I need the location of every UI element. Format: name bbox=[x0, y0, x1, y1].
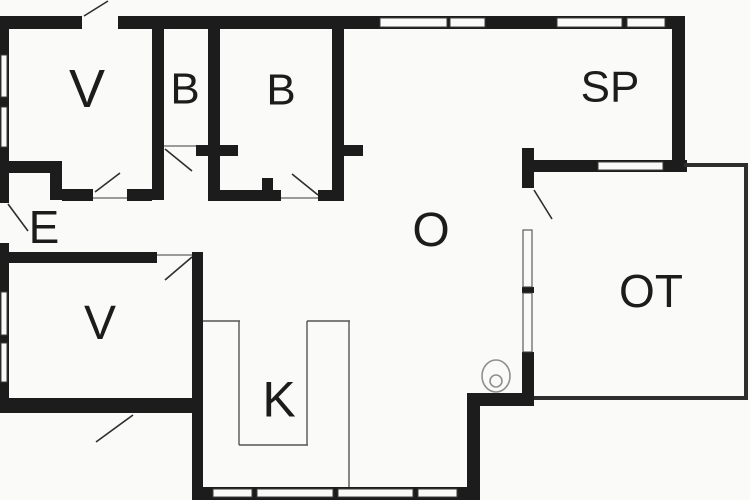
window-sp-bottom bbox=[598, 162, 663, 170]
wall-b1-b2 bbox=[208, 16, 220, 201]
room-label-living: O bbox=[412, 204, 449, 257]
window-left-2 bbox=[1, 107, 7, 147]
window-left-4 bbox=[1, 343, 7, 382]
terrace-edge-right bbox=[744, 163, 748, 400]
wall-k-right bbox=[467, 393, 480, 500]
room-label-entry: E bbox=[29, 201, 60, 253]
window-k-3 bbox=[338, 489, 413, 497]
wall-ot-left-mullion bbox=[522, 287, 534, 293]
gap-front-door bbox=[82, 14, 118, 31]
door-swing-v2-ext bbox=[96, 415, 133, 442]
wall-v1-bottom-right bbox=[127, 189, 152, 201]
room-label-dining: SP bbox=[581, 62, 640, 111]
room-label-bath-1: B bbox=[170, 64, 199, 113]
terrace-edge-top bbox=[684, 163, 748, 167]
labels-layer: VBBSPEOVKOT bbox=[29, 59, 683, 428]
terrace-edge-bottom bbox=[534, 396, 748, 400]
window-top-2 bbox=[450, 18, 485, 27]
door-swing-entry bbox=[8, 204, 28, 231]
wall-b2-o-stub bbox=[344, 145, 363, 156]
wall-sp-right bbox=[672, 16, 685, 172]
gap-entry-door bbox=[0, 203, 10, 243]
wall-e-step-top bbox=[0, 161, 62, 173]
window-ot-2 bbox=[523, 293, 532, 352]
room-label-kitchen: K bbox=[262, 372, 295, 428]
wall-v1-bottom-left bbox=[62, 189, 93, 201]
door-swing-b1 bbox=[165, 149, 192, 171]
wall-ot-left-lower bbox=[522, 352, 534, 406]
window-k-2 bbox=[257, 489, 333, 497]
wall-v2-top bbox=[0, 252, 157, 263]
wall-v1-b1 bbox=[152, 16, 164, 200]
window-top-3 bbox=[557, 18, 622, 27]
wall-b2-bottom-left bbox=[208, 190, 281, 201]
symbols-layer bbox=[482, 360, 510, 392]
door-swing-b2 bbox=[292, 174, 318, 195]
wall-b1-bottom-stub bbox=[196, 145, 238, 156]
window-top-4 bbox=[627, 18, 665, 27]
window-left-1 bbox=[1, 55, 7, 97]
door-swing-v2 bbox=[165, 257, 192, 280]
window-k-4 bbox=[418, 489, 457, 497]
wall-e-step-jog bbox=[50, 173, 62, 200]
stove-icon-inner bbox=[490, 375, 502, 387]
wall-b2-stub bbox=[262, 178, 273, 190]
door-swing-front bbox=[84, 1, 108, 16]
thresholds-layer bbox=[93, 146, 318, 255]
room-label-terrace: OT bbox=[619, 265, 683, 317]
room-label-bedroom-2: V bbox=[84, 297, 116, 350]
window-ot-1 bbox=[523, 230, 532, 287]
room-label-bedroom-1: V bbox=[69, 59, 105, 119]
wall-v2-bottom bbox=[0, 398, 203, 413]
room-label-bath-2: B bbox=[266, 65, 295, 114]
door-swing-v1 bbox=[95, 173, 120, 192]
wall-b2-o bbox=[332, 16, 344, 197]
window-left-3 bbox=[1, 292, 7, 335]
wall-v2-right-k-left bbox=[192, 252, 203, 500]
window-top-1 bbox=[380, 18, 447, 27]
window-k-1 bbox=[213, 489, 252, 497]
door-swing-ot bbox=[534, 190, 552, 219]
floorplan-canvas: VBBSPEOVKOT bbox=[0, 0, 750, 500]
